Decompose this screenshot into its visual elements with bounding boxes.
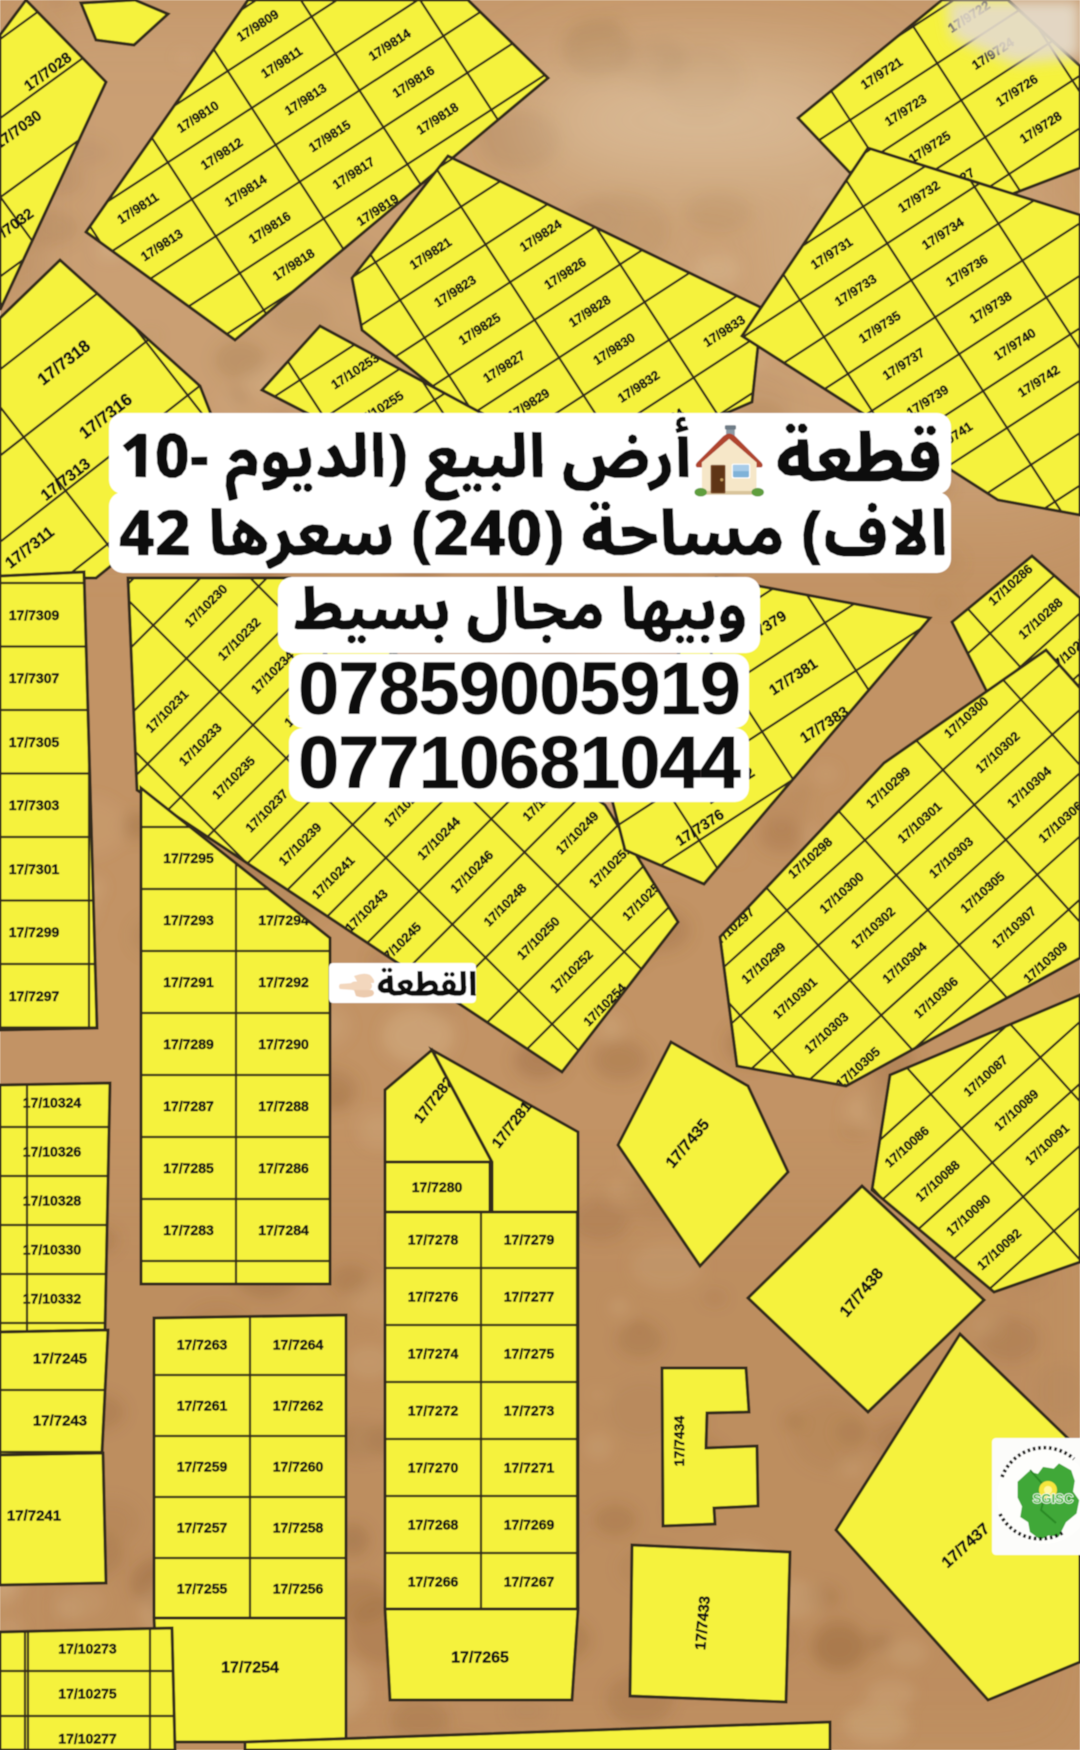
svg-text:17/7286: 17/7286 <box>258 1160 309 1176</box>
svg-text:17/7267: 17/7267 <box>504 1574 555 1590</box>
svg-text:17/7273: 17/7273 <box>504 1403 555 1419</box>
svg-text:17/7270: 17/7270 <box>408 1460 459 1476</box>
svg-text:17/7290: 17/7290 <box>258 1036 309 1052</box>
svg-text:17/7295: 17/7295 <box>163 850 214 866</box>
svg-text:17/7292: 17/7292 <box>258 974 309 990</box>
svg-text:17/7257: 17/7257 <box>177 1520 228 1536</box>
svg-text:17/7305: 17/7305 <box>9 734 60 750</box>
svg-text:17/7299: 17/7299 <box>9 924 60 940</box>
svg-text:17/7309: 17/7309 <box>9 607 60 623</box>
svg-text:17/7283: 17/7283 <box>163 1222 214 1238</box>
svg-text:17/7260: 17/7260 <box>273 1459 324 1475</box>
svg-text:17/10332: 17/10332 <box>23 1291 82 1307</box>
svg-text:17/7289: 17/7289 <box>163 1036 214 1052</box>
svg-text:17/7256: 17/7256 <box>273 1581 324 1597</box>
svg-text:17/7265: 17/7265 <box>451 1650 509 1667</box>
svg-text:17/7272: 17/7272 <box>408 1403 459 1419</box>
svg-text:17/7307: 17/7307 <box>9 670 60 686</box>
svg-text:17/7266: 17/7266 <box>408 1574 459 1590</box>
svg-text:17/7287: 17/7287 <box>163 1098 214 1114</box>
svg-text:17/10273: 17/10273 <box>58 1641 117 1657</box>
svg-text:17/7243: 17/7243 <box>33 1413 87 1430</box>
svg-text:17/7254: 17/7254 <box>221 1660 279 1677</box>
svg-text:17/7261: 17/7261 <box>177 1398 228 1414</box>
svg-text:17/7263: 17/7263 <box>177 1337 228 1353</box>
svg-text:17/7301: 17/7301 <box>9 861 60 877</box>
svg-text:17/10277: 17/10277 <box>58 1731 117 1747</box>
svg-text:17/10324: 17/10324 <box>23 1095 82 1111</box>
svg-text:17/7303: 17/7303 <box>9 797 60 813</box>
svg-text:17/7285: 17/7285 <box>163 1160 214 1176</box>
svg-text:17/7297: 17/7297 <box>9 988 60 1004</box>
svg-text:17/7271: 17/7271 <box>504 1460 555 1476</box>
svg-text:17/7277: 17/7277 <box>504 1289 555 1305</box>
svg-text:17/10275: 17/10275 <box>58 1686 117 1702</box>
svg-text:17/7258: 17/7258 <box>273 1520 324 1536</box>
svg-text:17/7241: 17/7241 <box>7 1508 61 1525</box>
svg-text:17/7274: 17/7274 <box>408 1346 459 1362</box>
svg-text:17/7434: 17/7434 <box>671 1415 687 1466</box>
svg-text:17/7264: 17/7264 <box>273 1337 324 1353</box>
svg-text:17/7259: 17/7259 <box>177 1459 228 1475</box>
svg-text:17/10328: 17/10328 <box>23 1193 82 1209</box>
svg-text:17/7268: 17/7268 <box>408 1517 459 1533</box>
svg-text:17/7288: 17/7288 <box>258 1098 309 1114</box>
svg-text:17/7262: 17/7262 <box>273 1398 324 1414</box>
svg-text:17/10330: 17/10330 <box>23 1242 82 1258</box>
svg-text:17/10326: 17/10326 <box>23 1144 82 1160</box>
svg-text:17/7284: 17/7284 <box>258 1222 309 1238</box>
svg-text:17/7291: 17/7291 <box>163 974 214 990</box>
svg-text:17/7293: 17/7293 <box>163 912 214 928</box>
svg-text:17/7255: 17/7255 <box>177 1581 228 1597</box>
svg-text:17/7269: 17/7269 <box>504 1517 555 1533</box>
svg-text:07859005919: 07859005919 <box>298 647 740 730</box>
svg-text:17/7280: 17/7280 <box>412 1179 463 1195</box>
svg-text:17/7276: 17/7276 <box>408 1289 459 1305</box>
svg-text:17/7275: 17/7275 <box>504 1346 555 1362</box>
svg-text:SGISC: SGISC <box>1033 1491 1074 1506</box>
svg-text:17/7245: 17/7245 <box>33 1351 87 1368</box>
svg-text:17/7279: 17/7279 <box>504 1232 555 1248</box>
svg-text:17/7278: 17/7278 <box>408 1232 459 1248</box>
svg-text:07710681044: 07710681044 <box>298 721 741 804</box>
